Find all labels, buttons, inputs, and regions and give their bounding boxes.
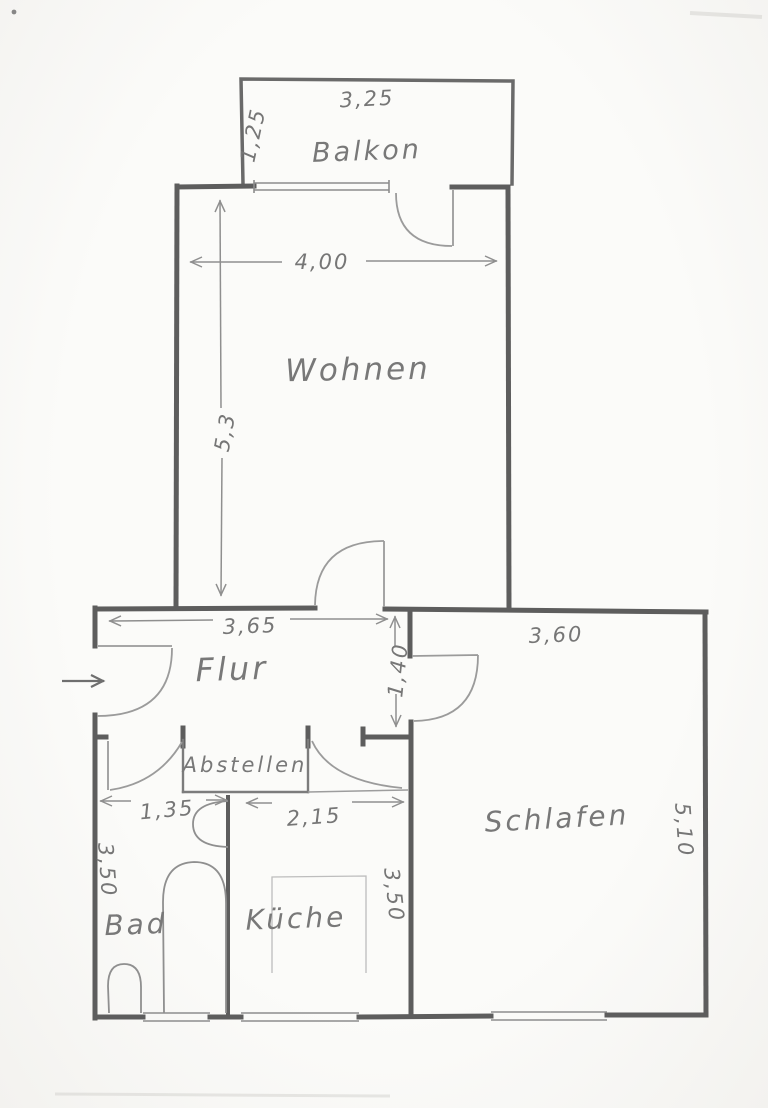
entry-door	[97, 646, 172, 716]
dim-corridor-depth: 1,40	[383, 642, 413, 699]
sink	[193, 801, 228, 847]
wohnen-top-wall-left	[177, 186, 254, 187]
floorplan-sheet: Balkon Wohnen Flur Abstellen Schlafen Ba…	[0, 0, 768, 1108]
paper-smudge	[55, 1094, 390, 1096]
dim-flur-width: 3,65	[222, 613, 278, 639]
room-label-schlafen: Schlafen	[484, 798, 630, 839]
dim-kueche-width: 2,15	[286, 803, 342, 831]
wohnen-window	[254, 180, 389, 193]
wohnen-door	[315, 541, 384, 607]
wohnen-right-wall	[508, 187, 509, 610]
flur-top-wall	[95, 608, 315, 609]
dim-bad-width: 1,35	[139, 796, 196, 825]
schlafen-window	[491, 1012, 607, 1020]
toilet	[108, 964, 141, 1013]
room-label-balkon: Balkon	[312, 134, 423, 169]
kueche-door	[312, 741, 402, 788]
labels: Balkon Wohnen Flur Abstellen Schlafen Ba…	[93, 86, 698, 943]
room-label-kueche: Küche	[245, 900, 347, 936]
dim-bad-height: 3,50	[93, 842, 121, 898]
bottom-wall-seg3	[359, 1016, 491, 1017]
room-label-abstellen: Abstellen	[181, 753, 308, 777]
right-wall	[705, 612, 706, 1015]
dim-schlafen-width: 3,60	[528, 622, 584, 648]
dim-line-wohnen-height-top	[220, 200, 221, 408]
bathtub	[163, 862, 226, 1013]
paper-speck	[12, 10, 17, 15]
dim-kueche-height: 3,50	[379, 867, 409, 924]
room-label-wohnen: Wohnen	[285, 351, 431, 390]
room-label-bad: Bad	[104, 907, 168, 942]
dim-wohnen-height: 5,3	[210, 411, 240, 454]
kueche-threshold-line	[308, 790, 408, 792]
dim-line-flur-width-left	[109, 620, 213, 621]
wohnen-left-wall	[176, 186, 177, 608]
doors	[97, 190, 478, 790]
paper-smudge	[690, 13, 762, 17]
room-label-flur: Flur	[195, 649, 269, 690]
floorplan-drawing: Balkon Wohnen Flur Abstellen Schlafen Ba…	[0, 0, 768, 1108]
kueche-window	[241, 1013, 359, 1021]
schlafen-top-wall	[385, 609, 706, 612]
bad-window	[143, 1013, 210, 1021]
windows	[143, 180, 607, 1021]
schlafen-door	[412, 655, 478, 721]
dim-schlafen-height: 5,10	[670, 802, 698, 858]
balkon-door	[396, 190, 453, 246]
dim-wohnen-width: 4,00	[295, 250, 350, 274]
dim-balkon-width: 3,25	[339, 86, 395, 113]
bad-door	[108, 741, 182, 790]
dim-line-wohnen-height-bottom	[221, 458, 222, 596]
